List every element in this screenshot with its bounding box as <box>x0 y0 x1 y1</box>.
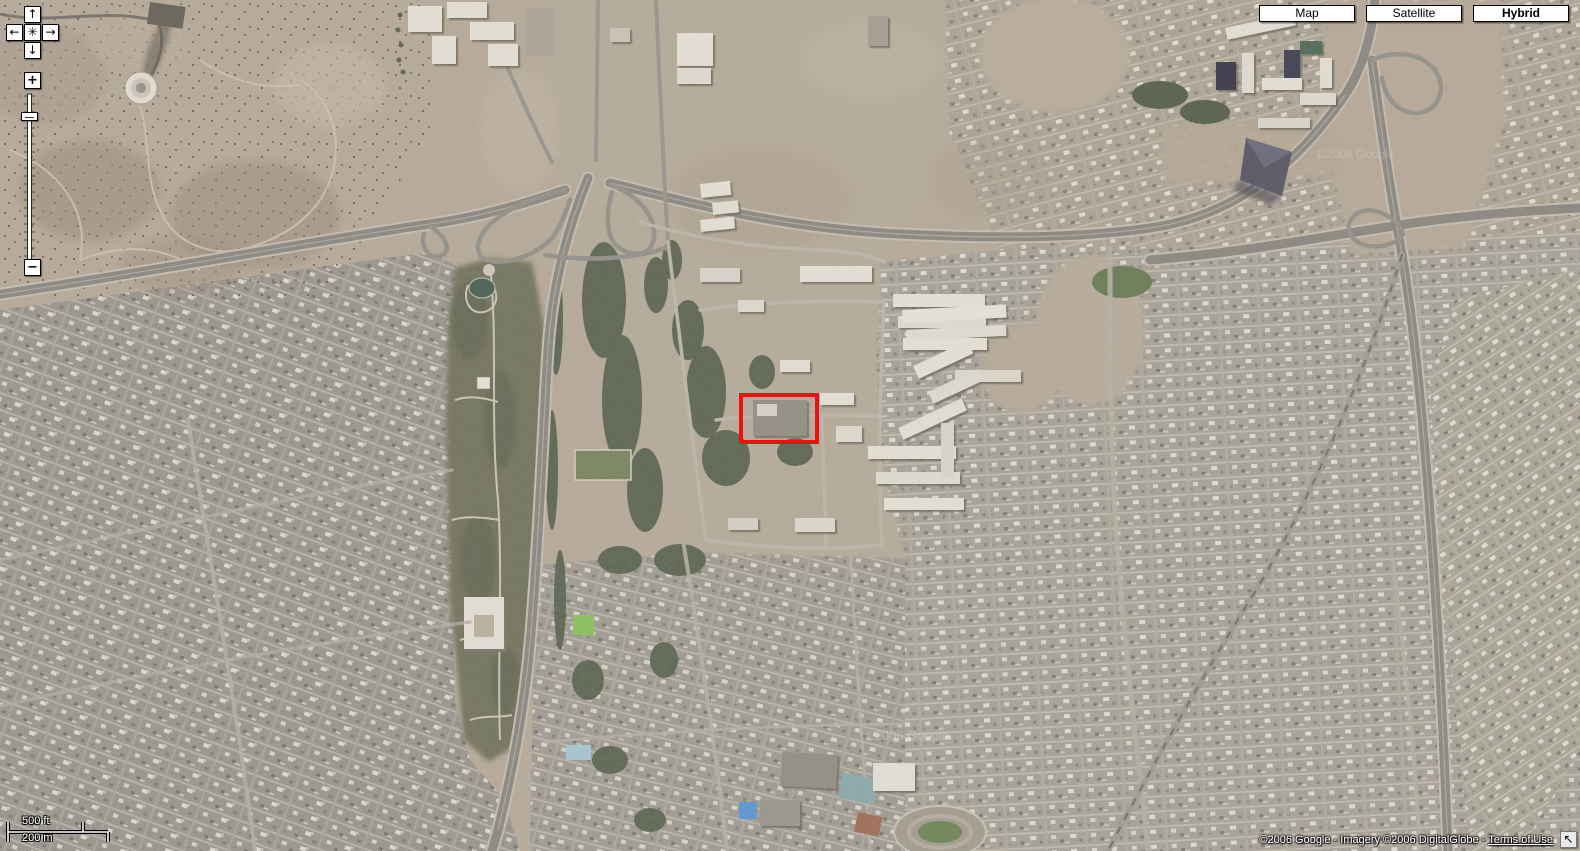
zoom-out-icon: − <box>27 261 38 274</box>
zoom-slider-handle[interactable] <box>21 112 38 121</box>
pan-left-icon: ← <box>9 26 19 39</box>
zoom-in-button[interactable]: + <box>24 72 41 89</box>
satellite-imagery[interactable]: ©2006 Google ©2006 Google <box>0 0 1580 851</box>
map-viewport: ©2006 Google ©2006 Google ↑ ← ✳ → ↓ + − … <box>0 0 1580 851</box>
map-type-button-satellite[interactable]: Satellite <box>1366 5 1462 22</box>
return-to-last-result-icon: ✳ <box>27 26 37 39</box>
terms-of-use-link[interactable]: Terms of Use <box>1488 834 1553 846</box>
scale-imperial-label: 500 ft <box>22 816 50 827</box>
return-to-last-result-button[interactable]: ✳ <box>24 24 41 41</box>
zoom-out-button[interactable]: − <box>24 259 41 276</box>
attribution: ©2006 Google - Imagery ©2006 DigitalGlob… <box>1259 834 1553 847</box>
pan-left-button[interactable]: ← <box>6 24 23 41</box>
pan-up-button[interactable]: ↑ <box>24 6 41 23</box>
map-type-button-hybrid[interactable]: Hybrid <box>1473 5 1569 22</box>
zoom-in-icon: + <box>27 74 38 87</box>
map-type-button-map[interactable]: Map <box>1259 5 1355 22</box>
scale-bar-graphic <box>2 816 122 848</box>
pan-down-icon: ↓ <box>27 44 37 57</box>
pan-right-button[interactable]: → <box>42 24 59 41</box>
pan-right-icon: → <box>45 26 55 39</box>
pan-to-northwest-button[interactable]: ↖ <box>1560 831 1577 848</box>
copyright-text: ©2006 Google - Imagery ©2006 DigitalGlob… <box>1259 834 1488 846</box>
pan-up-icon: ↑ <box>27 8 37 21</box>
scale-metric-label: 200 m <box>22 833 53 844</box>
northwest-arrow-icon: ↖ <box>1563 833 1573 846</box>
pan-down-button[interactable]: ↓ <box>24 42 41 59</box>
